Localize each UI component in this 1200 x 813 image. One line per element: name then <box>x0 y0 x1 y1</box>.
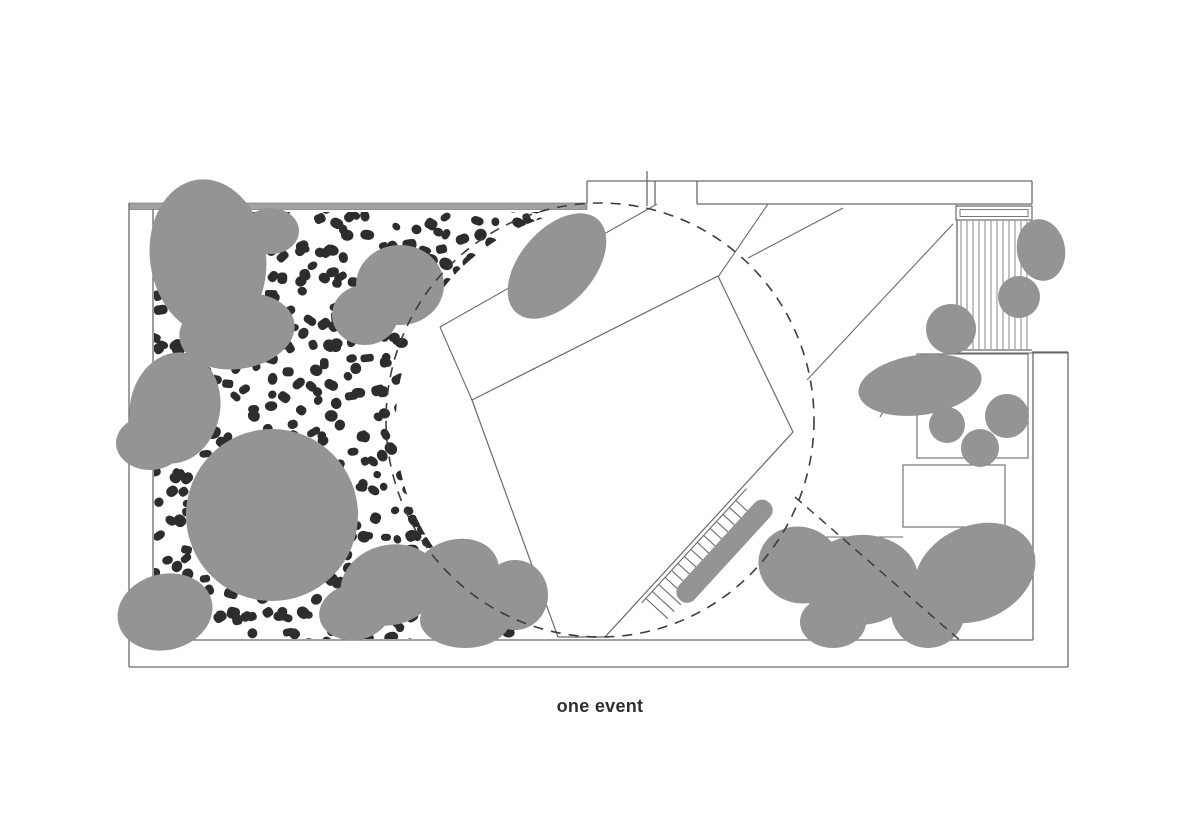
tree-canopy-blob <box>420 592 510 648</box>
gravel-pebble <box>320 358 329 369</box>
tree-canopy-blob <box>929 407 965 443</box>
tree-canopy-blob <box>332 285 398 345</box>
tree-canopy-blob <box>116 416 184 470</box>
plan-caption: one event <box>0 696 1200 717</box>
site-plan-page: one event <box>0 0 1200 813</box>
gravel-pebble <box>282 367 293 376</box>
tree-canopy-blob <box>961 429 999 467</box>
planting-bed <box>903 465 1005 527</box>
site-plan-drawing <box>0 0 1200 813</box>
tree-canopy-blob <box>800 596 866 648</box>
gravel-pebble <box>381 534 391 541</box>
bench <box>956 206 1032 220</box>
tree-canopy-blob <box>998 276 1040 318</box>
tree-canopy-blob <box>243 208 299 254</box>
tree-canopy-blob <box>186 429 358 601</box>
gravel-pebble <box>222 379 234 388</box>
gravel-pebble <box>377 386 389 398</box>
gravel-pebble <box>277 272 287 284</box>
tree-canopy-blob <box>926 304 976 354</box>
tree-canopy-blob <box>985 394 1029 438</box>
